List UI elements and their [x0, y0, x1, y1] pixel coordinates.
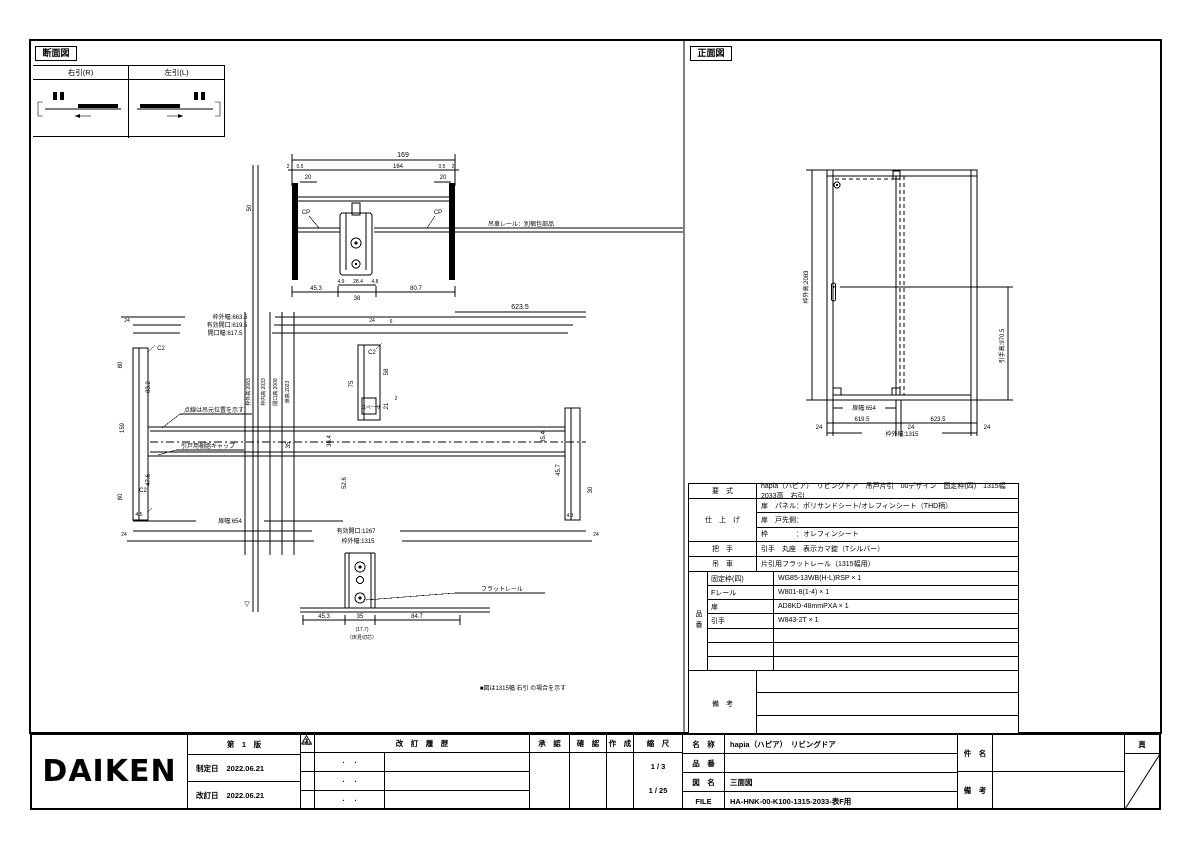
pn-value: [774, 657, 1018, 670]
edition-block: 第 1 版 制定日 2022.06.21 改訂日 2022.06.21: [187, 735, 300, 808]
dim-35: 35: [286, 441, 292, 448]
dim-4-8: 4.8: [372, 279, 379, 285]
pn-name: [708, 629, 774, 642]
pn-value: AD8KD-48mmPXA × 1: [774, 600, 1018, 613]
right-slide-icon: [33, 80, 129, 138]
direction-table: 右引(R) 左引(L): [33, 65, 225, 137]
direction-schematic-right: [33, 80, 129, 138]
dim-20l: 20: [305, 175, 312, 181]
dim-height-1: 枠外高:2083: [245, 378, 252, 406]
spec-handle-label: 把 手: [689, 542, 757, 556]
dim-24-d: 24: [593, 532, 599, 538]
create-label: 作 成: [607, 735, 633, 753]
spec-model-value: hapia（ハピア） リビングドア 吊戸片引 00デザイン 固定枠(四) 131…: [757, 484, 1018, 498]
floor-level-mark: ▽: [244, 601, 250, 608]
dim-height-4: 扉高:2023: [284, 381, 291, 404]
dim-2r: 2: [452, 164, 455, 170]
pn-value: WG85-13WB(H-L)RSP × 1: [774, 572, 1018, 585]
label-cp-left: CP: [302, 210, 310, 216]
subject-label-column: 件 名 備 考: [957, 735, 992, 808]
spec-row-rail: 吊 車 片引用フラットレール（1315幅用）: [689, 556, 1018, 571]
page-cell: [1125, 754, 1159, 809]
remarks-label: 備 考: [958, 772, 992, 809]
approve-column: 承 認: [529, 735, 569, 808]
dim-6: 6: [390, 319, 393, 325]
dim-84-7: 84.7: [411, 614, 423, 620]
pn-label: 品 番: [683, 754, 724, 773]
file-label: FILE: [683, 792, 724, 811]
pn-name: [708, 657, 774, 670]
revised-date: 2022.06.21: [227, 791, 265, 800]
dim-24-b: 24: [369, 318, 375, 324]
dim-45-3-b: 45.3: [318, 614, 330, 620]
spec-table: 要 式 hapia（ハピア） リビングドア 吊戸片引 00デザイン 固定枠(四)…: [688, 483, 1019, 738]
dim-80-7: 80.7: [410, 286, 422, 292]
dim-169: 169: [397, 152, 409, 159]
dim-35-b: 35: [357, 614, 364, 620]
dim-623-5-elev: 623.5: [930, 417, 946, 423]
dim-2s: 2: [395, 396, 398, 402]
dim-45-3: 45.3: [310, 286, 322, 292]
dim-619-5: 619.5: [854, 417, 870, 423]
dim-21: 21: [384, 402, 390, 409]
scale-column: 縮 尺 1 / 3 1 / 25: [633, 735, 682, 808]
label-c2-bottom-left: C2: [139, 488, 147, 494]
rail-note: 吊車レール：別梱包部品: [488, 220, 554, 228]
dim-1267: 有効開口:1267: [336, 527, 376, 535]
spec-rail-value: 片引用フラットレール（1315幅用）: [757, 557, 1018, 571]
spec-model-label: 要 式: [689, 484, 757, 498]
dim-623-5: 623.5: [511, 304, 529, 311]
revised-label: 改訂日: [196, 790, 219, 801]
label-c2-top-left: C2: [157, 346, 165, 352]
scale-detail: 1 / 3: [634, 753, 682, 779]
pn-name: 引手: [708, 614, 774, 627]
note-dashed-line: 点線は吊元位置を示す: [184, 406, 244, 414]
rev-dots-2: ・ ・: [315, 772, 385, 790]
page-diagonal-icon: [1125, 754, 1160, 809]
page-column: 頁: [1124, 735, 1159, 808]
name-label: 名 称: [683, 735, 724, 754]
revision-no-column: No. 1 2 3: [300, 735, 314, 808]
dim-24-right: 24: [984, 425, 991, 431]
dim-45-7: 45.7: [556, 464, 562, 476]
approve-label: 承 認: [530, 735, 569, 753]
dim-36-4: 36.4: [327, 435, 333, 447]
spec-finish-label: 仕 上 げ: [689, 499, 757, 541]
spec-pn-label: 品番: [689, 572, 708, 670]
name-value: hapia（ハピア） リビングドア: [725, 735, 957, 754]
dim-05r: 0.5: [439, 164, 446, 170]
pn-name: [708, 643, 774, 656]
label-c2-center: C2: [368, 350, 376, 356]
label-spacer: スペーサ: [361, 405, 381, 411]
dim-30: 30: [588, 486, 594, 493]
right-panel-title: 正面図: [690, 46, 732, 61]
pn-value: W801-8(1-4) × 1: [774, 586, 1018, 599]
file-value: HA-HNK-00-K100-1315-2033-表F用: [725, 792, 957, 811]
direction-left-label: 左引(L): [129, 66, 224, 79]
dim-w-out: 枠外幅:663.5: [213, 313, 248, 321]
meta-value-column: hapia（ハピア） リビングドア 三面図 HA-HNK-00-K100-131…: [724, 735, 957, 808]
left-panel-title: 断面図: [35, 46, 77, 61]
dim-58: 58: [384, 368, 390, 375]
scale-label: 縮 尺: [634, 735, 682, 753]
revision-header: 改 訂 履 歴: [315, 735, 529, 753]
dim-24-left: 24: [816, 425, 823, 431]
page-label: 頁: [1125, 735, 1159, 754]
dim-47-6: 47.6: [146, 474, 152, 486]
spec-row-part-numbers: 品番 固定枠(四)WG85-13WB(H-L)RSP × 1 FレールW801-…: [689, 571, 1018, 670]
triangle-3-icon: 3: [301, 735, 312, 745]
pn-name: Fレール: [708, 586, 774, 599]
subject-value-column: [992, 735, 1124, 808]
spec-finish-row2: 扉 戸先側：: [757, 513, 1018, 526]
label-cp-right: CP: [434, 210, 442, 216]
dim-4-5: 4.5: [136, 512, 143, 518]
dim-frame-height: 枠外高:2083: [802, 270, 810, 304]
dim-05l: 0.5: [297, 164, 304, 170]
note-resin-cap: 引戸用樹脂キャップ: [181, 442, 235, 450]
dim-20r: 20: [440, 175, 447, 181]
dim-door-width-elev: 扉幅:654: [852, 404, 876, 412]
spec-row-finish: 仕 上 げ 扉 パネル：ポリサンドシート/オレフィンシート（THD柄） 扉 戸先…: [689, 498, 1018, 541]
create-column: 作 成: [606, 735, 633, 808]
dim-35-4: 35.4: [541, 431, 547, 443]
spec-handle-value: 引手 丸座 表示カマ錠（Tシルバー）: [757, 542, 1018, 556]
direction-schematic-left: [129, 80, 224, 138]
dim-80-bottom: 80: [118, 493, 124, 500]
pn-name: 扉: [708, 600, 774, 613]
front-elevation: 枠外高:2083 引手高:970.5 扉幅:654 24 619.5 24 62…: [802, 170, 1013, 438]
dim-4-3: 4.3: [567, 513, 574, 519]
label-flat-rail: フラットレール: [481, 586, 523, 593]
dim-1315: 枠外幅:1315: [341, 537, 375, 545]
rev-mark-1: 1: [301, 753, 314, 772]
spec-row-model: 要 式 hapia（ハピア） リビングドア 吊戸片引 00デザイン 固定枠(四)…: [689, 484, 1018, 498]
drawing-sheet: 169 2 0.5 164 0.5 2 20 20 CP CP 50 吊車レール…: [0, 0, 1191, 842]
top-rail-section: 169 2 0.5 164 0.5 2 20 20 CP CP 50 吊車レール…: [247, 152, 683, 302]
dim-159: 159: [120, 422, 126, 433]
dim-height-2: 枠内高:2033: [260, 378, 267, 406]
enacted-date: 2022.06.21: [227, 764, 265, 773]
dim-24-c: 24: [121, 532, 127, 538]
dim-w-open: 開口幅:617.5: [208, 329, 243, 337]
dim-38: 38: [354, 296, 361, 302]
rev-dots-1: ・ ・: [315, 753, 385, 771]
edition-label: 第 1 版: [188, 735, 300, 755]
dim-164: 164: [393, 164, 404, 170]
dim-83-2: 83.2: [146, 381, 152, 393]
check-column: 確 認: [569, 735, 606, 808]
rev-mark-2: 2: [301, 772, 314, 791]
dim-height-3: 開口高:2008: [272, 378, 279, 406]
dim-17-7: (17.7): [355, 627, 368, 633]
subject-label: 件 名: [958, 735, 992, 772]
dim-handle-height: 引手高:970.5: [998, 328, 1006, 363]
dim-52-6: 52.6: [342, 477, 348, 489]
spec-finish-row3: 枠 ：オレフィンシート: [757, 528, 1018, 541]
scale-overall: 1 / 25: [634, 779, 682, 801]
dim-75: 75: [349, 380, 355, 387]
dim-4-9: 4.9: [338, 279, 345, 285]
daiken-logo-text: DAIKEN: [42, 754, 176, 789]
spec-finish-row1: 扉 パネル：ポリサンドシート/オレフィンシート（THD柄）: [757, 499, 1018, 512]
dwg-value: 三面図: [725, 773, 957, 792]
daiken-logo: DAIKEN: [32, 735, 187, 808]
pn-value: W843-2T × 1: [774, 614, 1018, 627]
revision-history: 改 訂 履 歴 ・ ・ ・ ・ ・ ・: [314, 735, 529, 808]
dim-24-a: 24: [124, 318, 130, 324]
dim-door-width: 扉幅:654: [218, 517, 242, 525]
spec-rail-label: 吊 車: [689, 557, 757, 571]
rev-dots-3: ・ ・: [315, 791, 385, 809]
dim-24-mid: 24: [908, 425, 915, 431]
dim-80-top: 80: [118, 361, 124, 368]
dim-w-eff: 有効開口:619.5: [207, 321, 248, 329]
rev-mark-3: 3: [301, 791, 314, 809]
spec-remarks-label: 備 考: [689, 671, 757, 737]
pn-value: [774, 643, 1018, 656]
dim-frame-width: 枠外幅:1315: [885, 430, 919, 438]
dim-17-7-note: （床見切芯）: [347, 634, 377, 641]
subject-value: [993, 735, 1124, 772]
panel-footnote: ■図は1315幅 右引 の場合を示す: [480, 684, 566, 692]
enacted-label: 制定日: [196, 763, 219, 774]
left-slide-icon: [129, 80, 225, 138]
pn-value: [774, 629, 1018, 642]
dim-28-4: 28.4: [353, 279, 363, 285]
title-block: DAIKEN 第 1 版 制定日 2022.06.21 改訂日 2022.06.…: [30, 733, 1161, 810]
remarks-value: [993, 772, 1124, 809]
dim-2l: 2: [287, 164, 290, 170]
direction-right-label: 右引(R): [33, 66, 129, 79]
spec-row-remarks: 備 考: [689, 670, 1018, 737]
pn-value: [725, 754, 957, 773]
bottom-rail-detail: ▽ フラットレール 45.3 35 84.7 (17.7) （床見切芯）: [244, 553, 545, 641]
check-label: 確 認: [570, 735, 606, 753]
dim-50: 50: [247, 204, 253, 211]
meta-label-column: 名 称 品 番 図 名 FILE: [682, 735, 724, 808]
pn-name: 固定枠(四): [708, 572, 774, 585]
dwg-label: 図 名: [683, 773, 724, 792]
spec-row-handle: 把 手 引手 丸座 表示カマ錠（Tシルバー）: [689, 541, 1018, 556]
